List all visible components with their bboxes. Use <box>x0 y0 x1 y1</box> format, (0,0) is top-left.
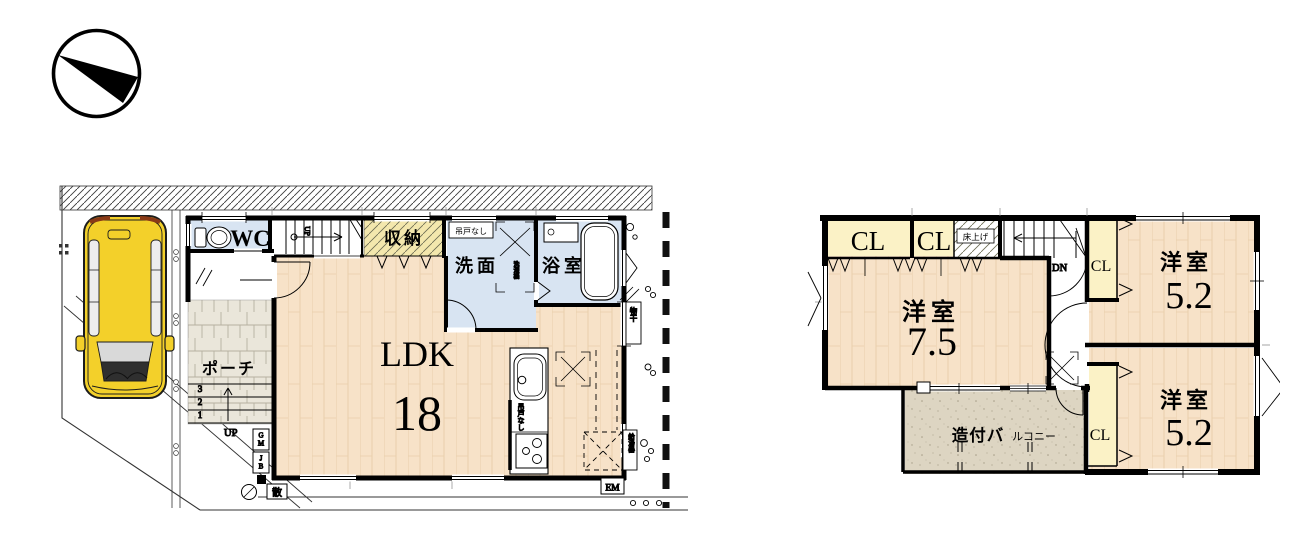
washer-label: 洗濯機 <box>512 260 519 280</box>
room-storage-label: 収納 <box>384 228 424 248</box>
raised-floor-label: 床上げ <box>963 232 989 242</box>
up-entry-label: UP <box>224 428 238 439</box>
no-hanging-door-box: 吊戸なし <box>449 222 493 238</box>
closet-2-label: CL <box>917 226 952 256</box>
room-bathroom-label: 浴室 <box>542 255 586 276</box>
laundry-pole-label: 物干 <box>629 306 638 324</box>
balcony-label: 造付バ <box>952 425 1005 445</box>
balcony-label-small: ルコニー <box>1012 431 1056 443</box>
car-icon <box>76 216 174 398</box>
jb-label: JB <box>257 455 265 471</box>
sink-icon <box>514 354 546 400</box>
stove-icon <box>516 434 547 468</box>
closet-4 <box>1089 366 1117 466</box>
step-3-label: 3 <box>198 384 203 394</box>
closet-3-label: CL <box>1091 258 1111 275</box>
gm-label: GM <box>257 432 265 448</box>
em-label: EM <box>605 484 620 494</box>
step-1-label: 1 <box>198 410 203 420</box>
room-washroom-label: 洗面 <box>455 255 499 276</box>
bedroom-2-size: 5.2 <box>1165 275 1213 317</box>
stairs-up-label: UP <box>303 226 312 236</box>
room-ldk-label: LDK <box>380 334 454 374</box>
floor2-plan: DN <box>800 195 1280 495</box>
closet-4-label: CL <box>1090 427 1110 444</box>
floor-plan-canvas: UP 洗濯機 吊戸なし <box>0 0 1305 548</box>
bedroom-main-size: 7.5 <box>907 319 957 364</box>
toilet-icon <box>195 227 231 248</box>
raised-floor-box: 床上げ <box>957 229 994 243</box>
stairs-dn-label: DN <box>1052 263 1068 274</box>
north-arrow-icon <box>40 20 152 130</box>
kitchen-no-hanging-door-label: 吊戸なし <box>517 403 525 431</box>
bedroom-3-size: 5.2 <box>1165 412 1213 454</box>
porch-label: ポーチ <box>202 359 256 378</box>
no-hanging-door-label: 吊戸なし <box>455 227 487 236</box>
bedroom-2-label: 洋室 <box>1160 250 1212 275</box>
closet-1-label: CL <box>851 226 886 256</box>
floor1-plan: UP 洗濯機 吊戸なし <box>55 178 695 520</box>
sprinkler-label: 散 <box>272 486 282 499</box>
room-wc-label: WC <box>230 226 270 251</box>
bedroom-3-label: 洋室 <box>1160 388 1212 413</box>
room-ldk-size: 18 <box>392 385 442 441</box>
step-2-label: 2 <box>198 397 203 407</box>
entry-area <box>190 251 272 300</box>
